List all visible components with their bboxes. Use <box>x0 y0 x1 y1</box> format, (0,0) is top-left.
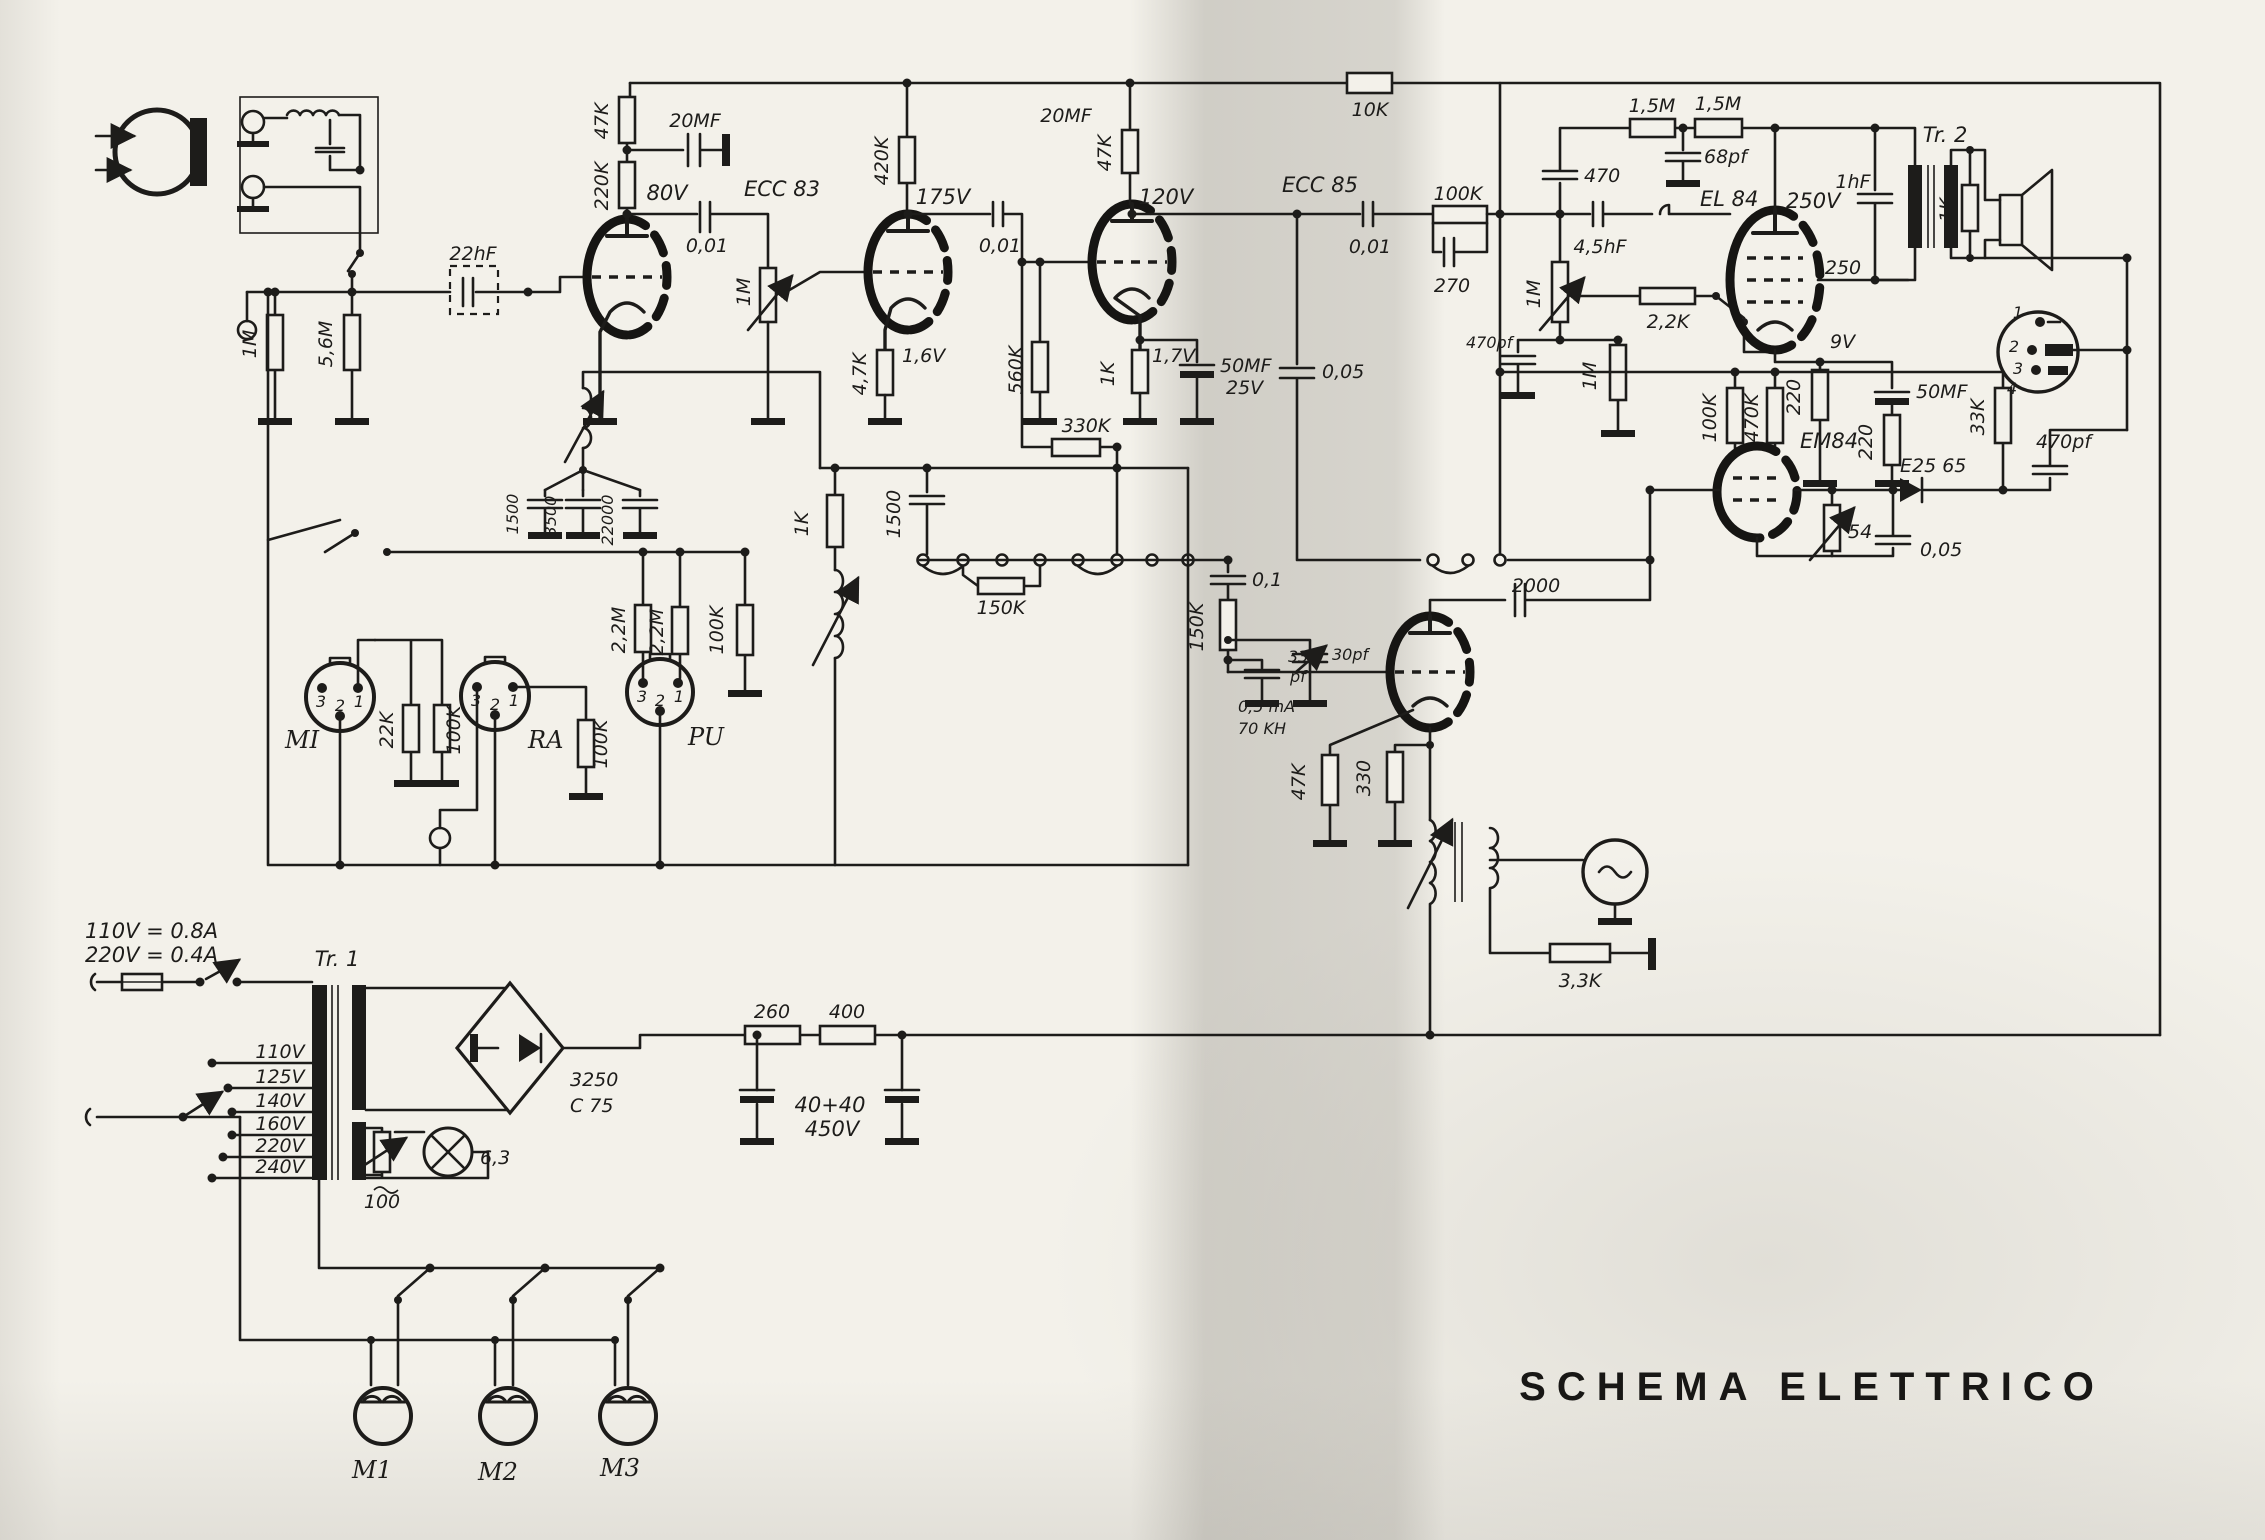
label-cap-005-a: 0,05 <box>1322 361 1364 383</box>
label-resistor-420k: 420K <box>871 135 893 185</box>
tr1-primary <box>312 985 327 1180</box>
resistor-1m5-b <box>1695 119 1742 137</box>
circuit-drawing: 22hF 1M 5,6M 47K 220K 20MF 80V ECC 83 0,… <box>0 0 2265 1540</box>
label-motor-m1: M1 <box>351 1456 392 1484</box>
label-resistor-150k-v: 150K <box>1186 601 1208 651</box>
label-motor-m3: M3 <box>599 1454 640 1482</box>
input-sockets <box>264 288 1189 870</box>
label-cap-001-c: 0,01 <box>1349 236 1391 258</box>
label-cap-3500: 3500 <box>541 496 560 537</box>
schematic-scan: 22hF 1M 5,6M 47K 220K 20MF 80V ECC 83 0,… <box>0 0 2265 1540</box>
label-cap-50mf: 50MF <box>1220 355 1273 377</box>
resistor-10k <box>1347 73 1392 93</box>
label-resistor-100: 100 <box>364 1191 400 1213</box>
label-1v6: 1,6V <box>902 345 947 367</box>
label-cap-005-b: 0,05 <box>1920 539 1962 561</box>
pin-pu-1: 1 <box>674 687 684 706</box>
label-resistor-10k: 10K <box>1352 99 1390 121</box>
label-resistor-100k-coupling: 100K <box>1434 183 1484 205</box>
label-cap-4040: 40+40 <box>794 1093 865 1117</box>
label-250v: 250V <box>1786 189 1842 213</box>
label-tap-160: 160V <box>255 1113 306 1135</box>
label-25v: 25V <box>1226 377 1265 399</box>
pin-ra-2: 2 <box>490 695 500 714</box>
resistor-150k-switch <box>978 578 1024 594</box>
tr1-heater <box>352 1122 366 1180</box>
resistor-100k-c <box>737 605 753 655</box>
label-cap-470pf-a: 470pf <box>1466 333 1515 352</box>
label-resistor-22k: 22K <box>376 710 398 748</box>
label-tube-el84: EL 84 <box>1700 187 1758 211</box>
label-resistor-4k7: 4,7K <box>849 351 871 395</box>
label-cap-4hf5: 4,5hF <box>1573 236 1627 258</box>
resistor-1m-input <box>267 315 283 370</box>
label-resistor-100k-c: 100K <box>706 604 728 654</box>
tr2-primary <box>1908 165 1922 248</box>
label-cap-01: 0,1 <box>1252 569 1282 591</box>
resistor-2k2 <box>1640 288 1695 304</box>
eq-switch-network <box>528 262 1194 865</box>
label-70kh: 70 KH <box>1238 719 1286 738</box>
resistor-1k-cath <box>1132 350 1148 393</box>
input-network <box>238 266 587 425</box>
label-tube-ecc83: ECC 83 <box>744 177 820 201</box>
label-resistor-100k-a: 100K <box>443 704 465 754</box>
page-title: SCHEMA ELETTRICO <box>1519 1365 2105 1409</box>
label-tube-ecc85: ECC 85 <box>1282 173 1358 197</box>
label-resistor-47k-1: 47K <box>591 101 613 139</box>
label-rating-220: 220V = 0.4A <box>85 943 218 967</box>
speaker-cone <box>2022 170 2052 270</box>
label-cap-20mf-1: 20MF <box>669 110 722 132</box>
label-resistor-47k-osc: 47K <box>1288 762 1310 800</box>
label-tr1: Tr. 1 <box>315 947 360 971</box>
tube-em84 <box>1757 446 1797 538</box>
pin-mi-1: 1 <box>354 692 364 711</box>
label-tube-em84: EM84 <box>1800 429 1858 453</box>
pin-mi-3: 3 <box>316 692 326 711</box>
label-resistor-100k-b: 100K <box>590 718 612 768</box>
resistor-220-b <box>1884 415 1900 465</box>
label-tap-240: 240V <box>255 1156 306 1178</box>
resistor-330 <box>1387 752 1403 802</box>
label-socket-mi: MI <box>284 726 320 754</box>
label-resistor-1m5-a: 1,5M <box>1629 95 1676 117</box>
head-coil <box>287 111 339 115</box>
label-tap-125: 125V <box>255 1066 306 1088</box>
label-pot-54: 54 <box>1848 521 1872 543</box>
resistor-420k <box>899 137 915 183</box>
label-cap-1hf: 1hF <box>1835 171 1871 193</box>
label-resistor-1k-speaker: 1K <box>1936 196 1958 222</box>
resistor-3k3 <box>1550 944 1610 962</box>
label-resistor-220-a: 220 <box>1783 379 1805 415</box>
label-lamp-63: 6,3 <box>480 1147 510 1169</box>
label-resistor-560k: 560K <box>1005 344 1027 394</box>
resistor-470k <box>1767 388 1783 443</box>
tube-ecc85-a <box>1092 79 1590 561</box>
resistor-47k-2 <box>1122 130 1138 173</box>
label-socket-ra: RA <box>527 726 563 754</box>
label-motor-m2: M2 <box>477 1458 518 1486</box>
resistor-4k7 <box>877 350 893 395</box>
label-1v7: 1,7V <box>1152 345 1197 367</box>
pin-out-2: 2 <box>2009 337 2019 356</box>
label-resistor-270: 270 <box>1434 275 1470 297</box>
label-cap-20mf-2: 20MF <box>1040 105 1093 127</box>
resistor-400 <box>820 1026 875 1044</box>
resistor-220k <box>619 162 635 208</box>
label-resistor-1m5-b: 1,5M <box>1695 93 1742 115</box>
label-cap-50mf-2: 50MF <box>1916 381 1969 403</box>
label-120v: 120V <box>1139 185 1195 209</box>
resistor-22k <box>403 705 419 752</box>
label-resistor-3k3: 3,3K <box>1559 970 1603 992</box>
label-cap-470pf-b: 470pf <box>2036 431 2094 453</box>
label-resistor-1k-osc: 1K <box>791 510 813 536</box>
label-cap-68pf: 68pf <box>1704 146 1750 168</box>
pin-ra-3: 3 <box>471 691 481 710</box>
resistor-1k-speaker <box>1962 185 1978 231</box>
label-tap-220: 220V <box>255 1135 306 1157</box>
label-resistor-330k: 330K <box>1062 415 1112 437</box>
resistor-2m2-b <box>672 607 688 654</box>
label-rating-110: 110V = 0.8A <box>85 919 218 943</box>
pin-pu-2: 2 <box>655 691 665 710</box>
label-resistor-400: 400 <box>829 1001 865 1023</box>
label-80v: 80V <box>646 181 689 205</box>
label-05ma: 0,5 mA <box>1238 697 1295 716</box>
label-tap-110: 110V <box>255 1041 306 1063</box>
label-9v: 9V <box>1830 331 1857 353</box>
label-resistor-1k-cath: 1K <box>1097 360 1119 386</box>
resistor-47k-osc <box>1322 755 1338 805</box>
label-resistor-33k: 33K <box>1967 397 1989 435</box>
jack-head-1 <box>242 111 264 133</box>
resistor-100k-coupling <box>1433 206 1487 223</box>
label-cap-30pf: 30pf <box>1332 645 1371 664</box>
label-rectifier-c75: C 75 <box>570 1095 613 1117</box>
speaker-coil <box>2000 195 2022 245</box>
label-diode-e25: E25 65 <box>1900 455 1966 477</box>
label-cap-001-b: 0,01 <box>979 235 1021 257</box>
motors <box>355 1388 656 1444</box>
pin-out-4: 4 <box>2007 379 2017 398</box>
record-play-head <box>96 97 378 297</box>
label-resistor-5m6: 5,6M <box>315 321 337 368</box>
label-resistor-1m-b: 1M <box>1579 362 1601 390</box>
label-pot-1m-b: 1M <box>1523 280 1545 308</box>
label-cap-22hf: 22hF <box>449 243 497 265</box>
jack-head-2 <box>242 176 264 198</box>
label-cap-001-a: 0,01 <box>686 235 728 257</box>
label-cap-22000: 22000 <box>598 495 617 546</box>
diode-e25 <box>1900 478 1922 502</box>
resistor-220-a <box>1812 370 1828 420</box>
label-tr2: Tr. 2 <box>1923 123 1968 147</box>
resistor-47k-1 <box>619 97 635 143</box>
rheostat-100 <box>374 1132 390 1172</box>
pin-out-1: 1 <box>2013 303 2023 322</box>
motor-switches <box>367 1264 665 1386</box>
label-resistor-47k-2: 47K <box>1094 133 1116 171</box>
label-tap-140: 140V <box>255 1090 306 1112</box>
label-resistor-2k2: 2,2K <box>1647 311 1691 333</box>
pin-ra-1: 1 <box>509 691 519 710</box>
label-cap-33-unit: pf <box>1289 667 1308 686</box>
label-175v: 175V <box>916 185 972 209</box>
label-pot-1m-a: 1M <box>733 278 755 306</box>
tr1-secondary <box>352 985 366 1110</box>
label-resistor-2m2-a: 2,2M <box>608 607 630 654</box>
pin-out-3: 3 <box>2013 359 2023 378</box>
label-rectifier-3250: 3250 <box>570 1069 618 1091</box>
jack-common <box>430 828 450 848</box>
label-resistor-330: 330 <box>1353 760 1375 796</box>
label-cap-1500-a: 1500 <box>503 494 522 535</box>
pin-mi-2: 2 <box>335 696 345 715</box>
label-resistor-260: 260 <box>754 1001 790 1023</box>
resistor-5m6 <box>344 315 360 370</box>
label-cap-1500-b: 1500 <box>883 490 905 538</box>
resistor-1m5-a <box>1630 119 1675 137</box>
label-450v: 450V <box>805 1117 861 1141</box>
label-cap-470: 470 <box>1584 165 1620 187</box>
resistor-560k <box>1032 342 1048 392</box>
label-cap-33: 33 <box>1288 647 1308 666</box>
label-resistor-2m2-b: 2,2M <box>646 609 668 656</box>
resistor-330k <box>1052 439 1100 456</box>
pin-pu-3: 3 <box>637 687 647 706</box>
label-resistor-220k: 220K <box>591 160 613 210</box>
label-resistor-220-b: 220 <box>1855 424 1877 460</box>
label-resistor-470k: 470K <box>1741 392 1763 442</box>
label-250: 250 <box>1825 257 1861 279</box>
label-socket-pu: PU <box>687 723 725 751</box>
label-resistor-150k-switch: 150K <box>977 597 1027 619</box>
label-cap-2000: 2000 <box>1512 575 1560 597</box>
resistor-1k-osc <box>827 495 843 547</box>
label-resistor-100k-em: 100K <box>1699 392 1721 442</box>
label-resistor-1m-input: 1M <box>239 330 261 358</box>
